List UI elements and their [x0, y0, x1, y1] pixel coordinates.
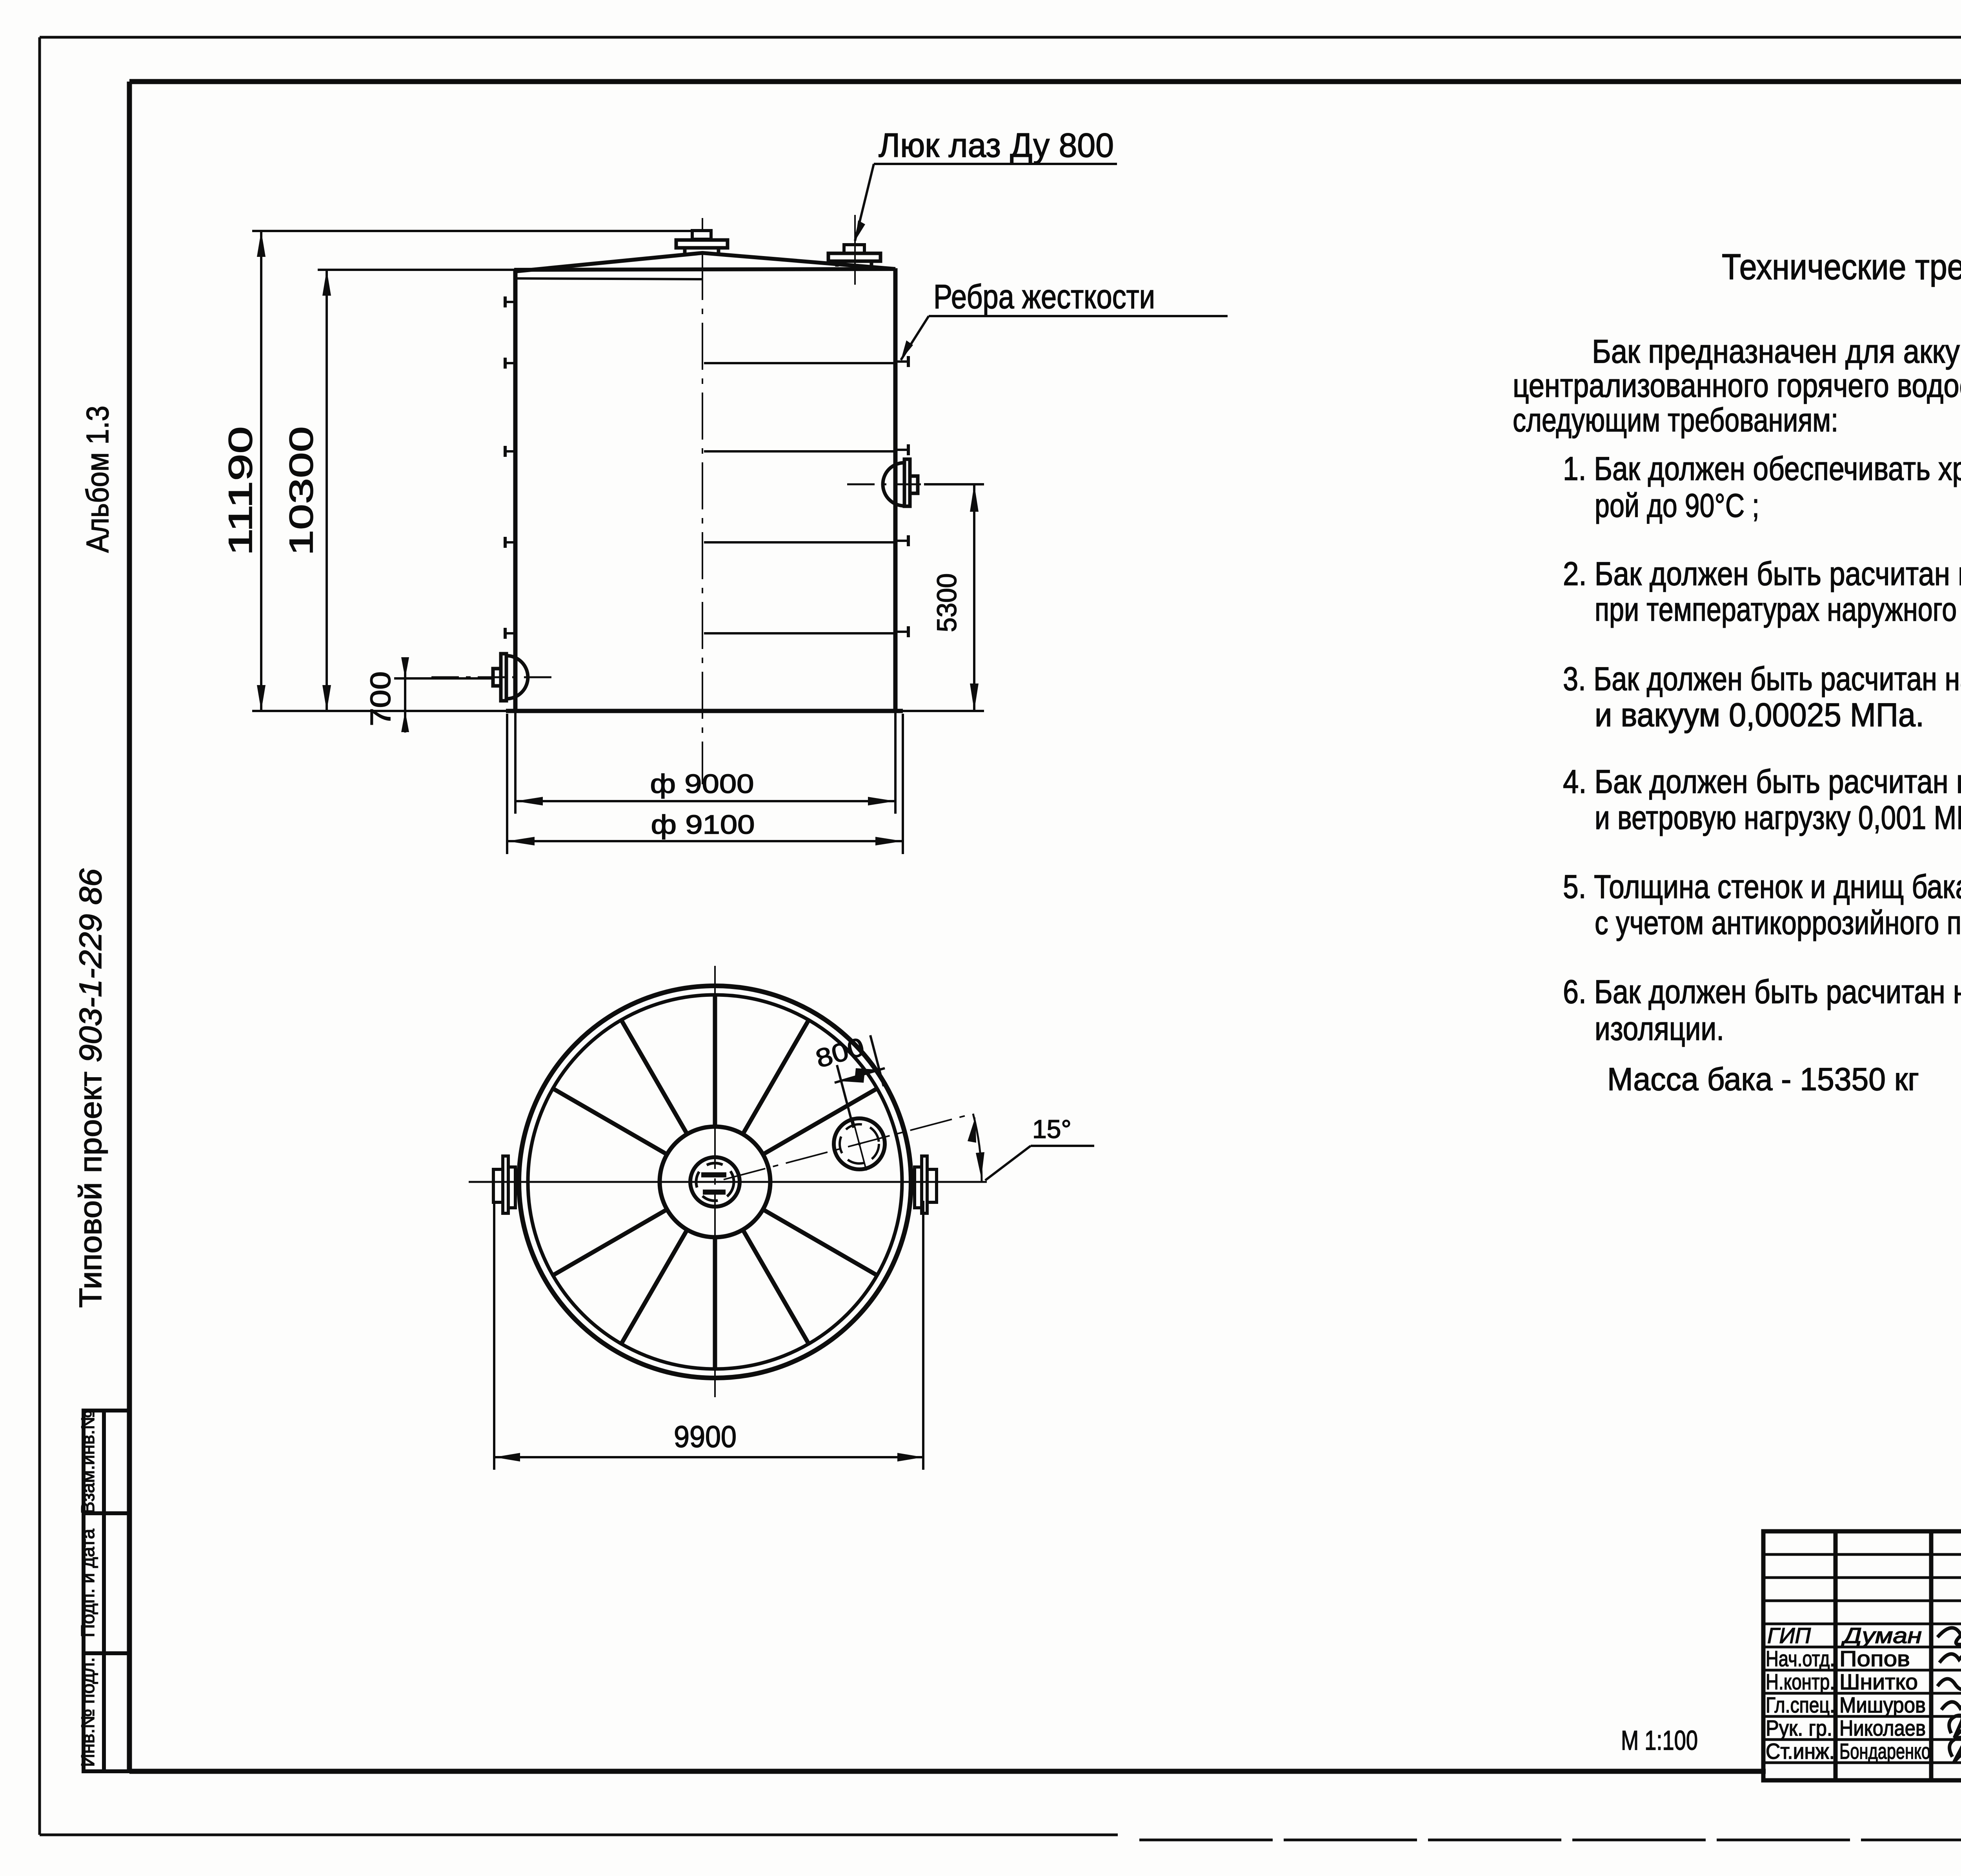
svg-text:Альбом 1.3: Альбом 1.3	[80, 406, 115, 553]
svg-text:Подп. и дата: Подп. и дата	[77, 1529, 98, 1638]
svg-text:ф 9100: ф 9100	[651, 810, 755, 840]
svg-text:и вакуум 0,00025 МПа.: и вакуум 0,00025 МПа.	[1595, 696, 1924, 733]
svg-text:Мишуров: Мишуров	[1839, 1692, 1926, 1717]
svg-text:Шнитко: Шнитко	[1839, 1669, 1918, 1694]
svg-text:М 1:100: М 1:100	[1621, 1725, 1698, 1756]
svg-text:Рук. гр.: Рук. гр.	[1766, 1716, 1832, 1740]
svg-text:Попов: Попов	[1839, 1646, 1910, 1671]
svg-text:Технические требования: Технические требования	[1722, 247, 1961, 287]
svg-text:Взам.инв.№: Взам.инв.№	[77, 1410, 98, 1514]
svg-text:4. Бак должен быть расчита: 4. Бак должен быть расчитан на снеговую …	[1563, 763, 1961, 800]
svg-text:Гл.спец.: Гл.спец.	[1766, 1692, 1835, 1717]
svg-text:Думан: Думан	[1841, 1623, 1922, 1648]
svg-text:централизованного горячего в: централизованного горячего водоснабжения…	[1513, 367, 1961, 404]
svg-text:11190: 11190	[222, 426, 259, 556]
svg-text:2. Бак должен быть расчита: 2. Бак должен быть расчитан на установку…	[1563, 555, 1961, 592]
svg-text:и ветровую нагрузку 0,001: и ветровую нагрузку 0,001 МПа.	[1595, 799, 1961, 836]
svg-text:при температурах наружного: при температурах наружного воздуха минус…	[1595, 591, 1961, 628]
svg-text:с учетом антикоррозийного п: с учетом антикоррозийного покрытия.	[1595, 904, 1961, 941]
svg-text:ф 9000: ф 9000	[650, 769, 754, 799]
svg-text:5. Толщина стенок и днищ: 5. Толщина стенок и днищ бака должна быт…	[1563, 868, 1961, 905]
svg-text:Масса бака - 15350 кг: Масса бака - 15350 кг	[1607, 1062, 1919, 1097]
svg-text:1. Бак должен обеспечивать: 1. Бак должен обеспечивать хранение горя…	[1563, 450, 1961, 487]
svg-text:Люк лаз Ду 800: Люк лаз Ду 800	[879, 127, 1114, 164]
svg-text:5300: 5300	[931, 573, 962, 632]
svg-text:15°: 15°	[1032, 1114, 1071, 1143]
svg-text:Нач.отд.: Нач.отд.	[1766, 1646, 1835, 1671]
svg-text:800: 800	[812, 1032, 868, 1073]
svg-text:Н.контр.: Н.контр.	[1766, 1669, 1835, 1694]
svg-text:Инв.№ подл.: Инв.№ подл.	[77, 1657, 98, 1767]
svg-text:9900: 9900	[674, 1419, 737, 1454]
svg-text:Бондаренко: Бондаренко	[1839, 1739, 1930, 1763]
svg-text:Николаев: Николаев	[1839, 1716, 1926, 1740]
svg-text:Бак предназначен для аккуму: Бак предназначен для аккумуляции горячей…	[1592, 333, 1961, 370]
svg-text:3. Бак должен быть расчита: 3. Бак должен быть расчитан на избыточно…	[1563, 660, 1961, 697]
svg-text:Типовой проект 903-1-229 86: Типовой проект 903-1-229 86	[73, 868, 108, 1308]
svg-text:рой до 90°С ;: рой до 90°С ;	[1595, 487, 1759, 524]
svg-text:следующим требованиям:: следующим требованиям:	[1513, 402, 1838, 438]
svg-text:Ст.инж.: Ст.инж.	[1766, 1739, 1835, 1763]
svg-text:изоляции.: изоляции.	[1595, 1010, 1724, 1047]
svg-text:700: 700	[365, 671, 397, 726]
svg-text:Ребра жесткости: Ребра жесткости	[933, 278, 1155, 316]
svg-text:10300: 10300	[283, 426, 320, 556]
svg-text:ГИП: ГИП	[1767, 1623, 1811, 1648]
svg-text:6. Бак должен быть расчита: 6. Бак должен быть расчитан на крепление…	[1563, 973, 1961, 1010]
